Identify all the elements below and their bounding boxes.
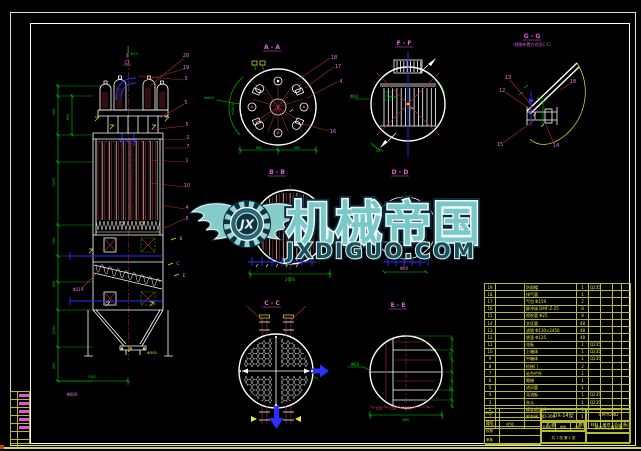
view-label-g-g: G - G	[524, 33, 541, 40]
bom-row: 13滤袋 Φ130×245048	[485, 327, 631, 334]
bom-cell-unit	[601, 384, 613, 391]
annotation-text: 10	[184, 183, 190, 189]
annotation-text: 150	[448, 386, 452, 392]
signature-mark	[19, 426, 29, 429]
bom-cell-note	[622, 391, 631, 398]
bom-cell-unit	[601, 298, 613, 305]
bom-cell-mat	[589, 384, 601, 391]
annotation-text: E	[183, 273, 186, 279]
bom-cell-total	[613, 391, 622, 398]
bom-cell-note	[622, 370, 631, 377]
bom-cell-no: 5	[485, 384, 496, 391]
bom-cell-mat	[589, 305, 601, 312]
annotation-text: 15	[497, 142, 503, 148]
annotation-text: Φ2600	[231, 103, 235, 115]
bom-cell-note	[622, 291, 631, 298]
bom-cell-qty: 1	[577, 377, 589, 384]
bom-cell-name: 滤袋 Φ130×2450	[525, 327, 577, 334]
bom-cell-total	[613, 305, 622, 312]
annotation-text: 660	[256, 146, 263, 150]
bom-cell-note	[622, 284, 631, 291]
annotation-text: 950	[52, 281, 56, 288]
signature-mark	[19, 394, 29, 397]
bom-cell-name: 中箱体	[525, 355, 577, 362]
bom-cell-mat: Q235	[589, 348, 601, 355]
bom-cell-no: 4	[485, 391, 496, 398]
bom-cell-no: 3	[485, 399, 496, 406]
bom-cell-total	[613, 291, 622, 298]
bom-cell-no: 9	[485, 355, 496, 362]
bom-cell-note	[622, 341, 631, 348]
bom-cell-code	[496, 312, 525, 319]
annotation-text: 12	[499, 88, 505, 94]
bom-cell-mat: Q235	[589, 399, 601, 406]
bom-row: 7走台栏杆1	[485, 370, 631, 377]
annotation-text: 4	[339, 79, 342, 85]
bom-cell-unit	[601, 370, 613, 377]
signature-mark	[19, 410, 29, 413]
cad-drawing-sheet: A - A F - F G - G （视图布置方向见C-C） B - B D -…	[0, 0, 641, 451]
bom-cell-unit	[601, 363, 613, 370]
bom-cell-name: 走台栏杆	[525, 370, 577, 377]
bom-cell-total	[613, 327, 622, 334]
bom-cell-name: 检修门	[525, 363, 577, 370]
bom-cell-total	[613, 355, 622, 362]
view-note-g-g: （视图布置方向见C-C）	[510, 41, 553, 47]
corner-mark	[0, 445, 4, 449]
bom-cell-mat	[589, 312, 601, 319]
bom-row: 18排气管1	[485, 291, 631, 298]
bom-cell-mat	[589, 291, 601, 298]
view-label-e-e: E - E	[391, 302, 406, 309]
annotation-text: 660	[294, 146, 301, 150]
bom-cell-name: 文氏管	[525, 319, 577, 326]
bom-cell-code	[496, 291, 525, 298]
bom-cell-total	[613, 370, 622, 377]
revision-row	[11, 424, 29, 432]
annotation-text: 900	[66, 114, 70, 121]
bom-cell-mat	[589, 363, 601, 370]
bom-cell-name: 防雨帽	[525, 284, 577, 291]
bom-cell-name: 上箱体	[525, 348, 577, 355]
bom-cell-unit	[601, 319, 613, 326]
bom-cell-code	[496, 391, 525, 398]
annotation-text: 17	[335, 64, 341, 70]
watermark-site: JXDIGUO.COM	[284, 239, 477, 263]
bom-cell-no: 15	[485, 312, 496, 319]
signature-mark	[19, 402, 29, 405]
bom-cell-total	[613, 384, 622, 391]
bom-cell-qty: 8	[577, 305, 589, 312]
annotation-text: 150	[448, 352, 452, 358]
bom-cell-code	[496, 334, 525, 341]
bom-cell-code	[496, 384, 525, 391]
revision-row	[11, 416, 29, 424]
annotation-text: 19	[183, 65, 189, 71]
bom-cell-mat	[589, 377, 601, 384]
bom-cell-mat	[589, 327, 601, 334]
annotation-text: 18	[331, 55, 337, 61]
bom-cell-qty: 1	[577, 384, 589, 391]
bom-cell-unit	[601, 334, 613, 341]
bom-row: 11花板1Q235	[485, 341, 631, 348]
bom-row: 10上箱体1Q235	[485, 348, 631, 355]
annotation-text: 5	[184, 100, 187, 106]
view-label-d-d: D - D	[392, 169, 409, 176]
annotation-text: 300	[52, 363, 56, 370]
bom-cell-code	[496, 355, 525, 362]
title-block-row-label: 标记	[486, 409, 500, 417]
bom-cell-unit	[601, 377, 613, 384]
watermark-gear-icon: JX	[227, 204, 267, 244]
annotation-text: 1	[185, 158, 188, 164]
bom-cell-qty: 48	[577, 334, 589, 341]
bom-cell-total	[613, 298, 622, 305]
bom-cell-unit	[601, 391, 613, 398]
bom-cell-total	[613, 348, 622, 355]
bom-cell-qty: 48	[577, 319, 589, 326]
annotation-text: Φ300	[147, 351, 156, 355]
parts-list-table: 19防雨帽1Q23518排气管117气包 Φ159216脉冲阀 DMF-Z-25…	[484, 283, 630, 408]
bom-cell-name: 导流板	[525, 391, 577, 398]
bom-cell-note	[622, 319, 631, 326]
bom-cell-unit	[601, 348, 613, 355]
annotation-text: 1400	[88, 375, 97, 379]
view-g-g	[503, 63, 585, 144]
bom-cell-total	[613, 334, 622, 341]
bom-cell-qty: 1	[577, 355, 589, 362]
bom-row: 17气包 Φ1592	[485, 298, 631, 305]
title-block-row: 校核	[485, 427, 541, 436]
bom-row: 19防雨帽1Q235	[485, 284, 631, 291]
bom-cell-qty: 1	[577, 341, 589, 348]
annotation-text: 14	[553, 143, 559, 149]
view-label-f-f: F - F	[397, 40, 412, 47]
bom-cell-code	[496, 363, 525, 370]
bom-cell-qty: 1	[577, 391, 589, 398]
bom-cell-unit	[601, 305, 613, 312]
bom-cell-mat	[589, 334, 601, 341]
bom-cell-code	[496, 377, 525, 384]
bom-cell-mat: Q235	[589, 341, 601, 348]
weight-label: 重量	[556, 423, 570, 430]
revision-row	[11, 432, 29, 440]
signature-mark	[19, 418, 29, 421]
title-block-row-label: 校核	[486, 427, 500, 435]
bom-cell-no: 10	[485, 348, 496, 355]
bom-cell-note	[622, 312, 631, 319]
annotation-text: 8	[185, 216, 188, 222]
annotation-text: Φ60	[400, 266, 409, 271]
bom-cell-name: 排气管	[525, 291, 577, 298]
bom-cell-name: 脉冲阀 DMF-Z-25	[525, 305, 577, 312]
revision-row	[11, 408, 29, 416]
bom-cell-note	[622, 377, 631, 384]
annotation-text: 4	[185, 205, 188, 211]
title-block-blank-cell	[586, 433, 631, 443]
annotation-text: 2600	[285, 277, 296, 282]
annotation-text: 3	[184, 76, 187, 82]
view-c-c	[239, 306, 329, 429]
view-label-a-a: A - A	[264, 44, 280, 51]
bom-cell-total	[613, 377, 622, 384]
annotation-text: 7	[186, 144, 189, 150]
annotation-text: 13	[505, 75, 511, 81]
title-block-row: 标记	[485, 409, 541, 418]
bom-cell-note	[622, 334, 631, 341]
bom-cell-no: 13	[485, 327, 496, 334]
bom-cell-code	[496, 305, 525, 312]
annotation-text: 45°	[376, 149, 382, 153]
bom-cell-no: 12	[485, 334, 496, 341]
bom-row: 8检修门2	[485, 363, 631, 370]
bom-cell-qty: 8	[577, 312, 589, 319]
annotation-text: C	[176, 261, 179, 267]
bom-row: 4导流板1Q235	[485, 391, 631, 398]
bom-cell-total	[613, 284, 622, 291]
bom-cell-unit	[601, 327, 613, 334]
annotation-text: 5	[185, 122, 188, 128]
bom-cell-no: 14	[485, 319, 496, 326]
title-block-row-label: 设计	[486, 418, 500, 426]
annotation-text: Φ600	[67, 392, 78, 397]
bom-cell-mat: Q235	[589, 355, 601, 362]
bom-cell-unit	[601, 399, 613, 406]
bom-row: 3灰斗1Q235	[485, 399, 631, 406]
annotation-text: 700	[52, 238, 56, 245]
bom-cell-code	[496, 370, 525, 377]
bom-cell-unit	[601, 291, 613, 298]
watermark: JX 机械帝国 机械帝国 机械帝国 JXDIGUO.COM JXDIGUO.CO…	[192, 197, 485, 265]
watermark-initials: JX	[238, 218, 254, 232]
bom-cell-qty: 48	[577, 327, 589, 334]
company-name: CMYOND	[586, 409, 631, 421]
bom-cell-no: 16	[485, 305, 496, 312]
bom-cell-unit	[601, 341, 613, 348]
title-block-row: 设计	[485, 418, 541, 427]
bom-cell-code	[496, 327, 525, 334]
annotation-text: Φ60	[351, 362, 360, 367]
sheet-count: 共 1 张 第 1 张	[541, 431, 586, 443]
revision-strip	[10, 391, 30, 444]
bom-cell-name: 袋笼 Φ125	[525, 334, 577, 341]
bom-cell-name: 喷吹管 Φ25	[525, 312, 577, 319]
annotation-text: 20	[183, 53, 189, 59]
title-block: 标记 设计 校核 审核 DX-14型 阶段标记 重量 比例 共 1 张 第 1 …	[484, 408, 630, 444]
view-e-e	[348, 332, 454, 419]
stage-row: 阶段标记 重量 比例	[541, 422, 586, 431]
scale-label: 比例	[571, 423, 585, 430]
bom-cell-note	[622, 348, 631, 355]
bom-cell-qty: 1	[577, 284, 589, 291]
bom-row: 16脉冲阀 DMF-Z-258	[485, 305, 631, 312]
drawing-title: 袋式除尘器总图	[586, 421, 631, 433]
bom-cell-no: 17	[485, 298, 496, 305]
bom-cell-name: 爬梯	[525, 377, 577, 384]
bom-cell-total	[613, 341, 622, 348]
view-f-f	[355, 52, 445, 157]
bom-cell-code	[496, 348, 525, 355]
sheet-bottom-rule	[0, 447, 641, 449]
bom-row: 5进风管1	[485, 384, 631, 391]
bom-cell-name: 灰斗	[525, 399, 577, 406]
bom-cell-no: 6	[485, 377, 496, 384]
bom-cell-note	[622, 363, 631, 370]
bom-cell-mat: Q235	[589, 391, 601, 398]
bom-cell-code	[496, 298, 525, 305]
annotation-text: 120	[376, 407, 383, 411]
bom-cell-mat	[589, 319, 601, 326]
bom-cell-name: 花板	[525, 341, 577, 348]
bom-row: 12袋笼 Φ12548	[485, 334, 631, 341]
bom-row: 15喷吹管 Φ258	[485, 312, 631, 319]
bom-cell-name: 气包 Φ159	[525, 298, 577, 305]
bom-cell-qty: 2	[577, 298, 589, 305]
annotation-text: Φ60	[350, 94, 359, 99]
bom-cell-note	[622, 327, 631, 334]
bom-cell-mat	[589, 370, 601, 377]
view-label-b-b: B - B	[269, 169, 285, 176]
bom-cell-total	[613, 363, 622, 370]
annotation-text: Φ60	[537, 96, 543, 100]
bom-cell-note	[622, 384, 631, 391]
bom-cell-no: 18	[485, 291, 496, 298]
annotation-text: B	[179, 236, 182, 242]
bom-cell-code	[496, 341, 525, 348]
revision-row	[11, 400, 29, 408]
bom-cell-total	[613, 399, 622, 406]
annotation-text: 120	[404, 407, 411, 411]
annotation-text: 1100	[52, 326, 56, 335]
annotation-text: 2450	[52, 178, 56, 187]
annotation-text: Φ600	[204, 96, 213, 100]
bom-cell-no: 8	[485, 363, 496, 370]
stage-label: 阶段标记	[542, 423, 556, 430]
annotation-text: 2	[186, 135, 189, 141]
annotation-text: 120	[390, 407, 397, 411]
annotation-text: Φ159	[388, 95, 396, 99]
view-main-elevation	[56, 46, 186, 385]
bom-cell-qty: 1	[577, 291, 589, 298]
bom-cell-total	[613, 312, 622, 319]
bom-cell-unit	[601, 284, 613, 291]
bom-row: 14文氏管48	[485, 319, 631, 326]
bom-cell-unit	[601, 312, 613, 319]
bom-cell-mat	[589, 298, 601, 305]
bom-cell-qty: 1	[577, 348, 589, 355]
bom-cell-total	[613, 319, 622, 326]
bom-cell-no: 19	[485, 284, 496, 291]
bom-cell-code	[496, 319, 525, 326]
bom-cell-qty: 1	[577, 399, 589, 406]
bom-cell-qty: 2	[577, 363, 589, 370]
annotation-text: Φ25	[130, 52, 137, 56]
title-block-row-label: 审核	[486, 436, 500, 444]
annotation-text: 660	[403, 418, 410, 422]
bom-cell-note	[622, 305, 631, 312]
bom-cell-qty: 1	[577, 370, 589, 377]
bom-cell-note	[622, 298, 631, 305]
annotation-text: 16	[330, 129, 336, 135]
bom-row: 9中箱体1Q235	[485, 355, 631, 362]
annotation-text: Φ219	[73, 287, 84, 292]
view-label-c-c: C - C	[264, 300, 280, 307]
bom-cell-unit	[601, 355, 613, 362]
bom-cell-note	[622, 355, 631, 362]
drawing-model-number: DX-14型	[541, 409, 586, 422]
annotation-text: 450	[52, 109, 56, 116]
bom-cell-code	[496, 284, 525, 291]
bom-cell-no: 7	[485, 370, 496, 377]
bom-cell-mat: Q235	[589, 284, 601, 291]
revision-row	[11, 440, 29, 447]
bom-cell-name: 进风管	[525, 384, 577, 391]
bom-cell-note	[622, 399, 631, 406]
annotation-text: 18	[570, 79, 576, 85]
bom-row: 6爬梯1	[485, 377, 631, 384]
bom-cell-code	[496, 399, 525, 406]
revision-row	[11, 392, 29, 400]
title-block-row: 审核	[485, 436, 541, 445]
bom-cell-no: 11	[485, 341, 496, 348]
